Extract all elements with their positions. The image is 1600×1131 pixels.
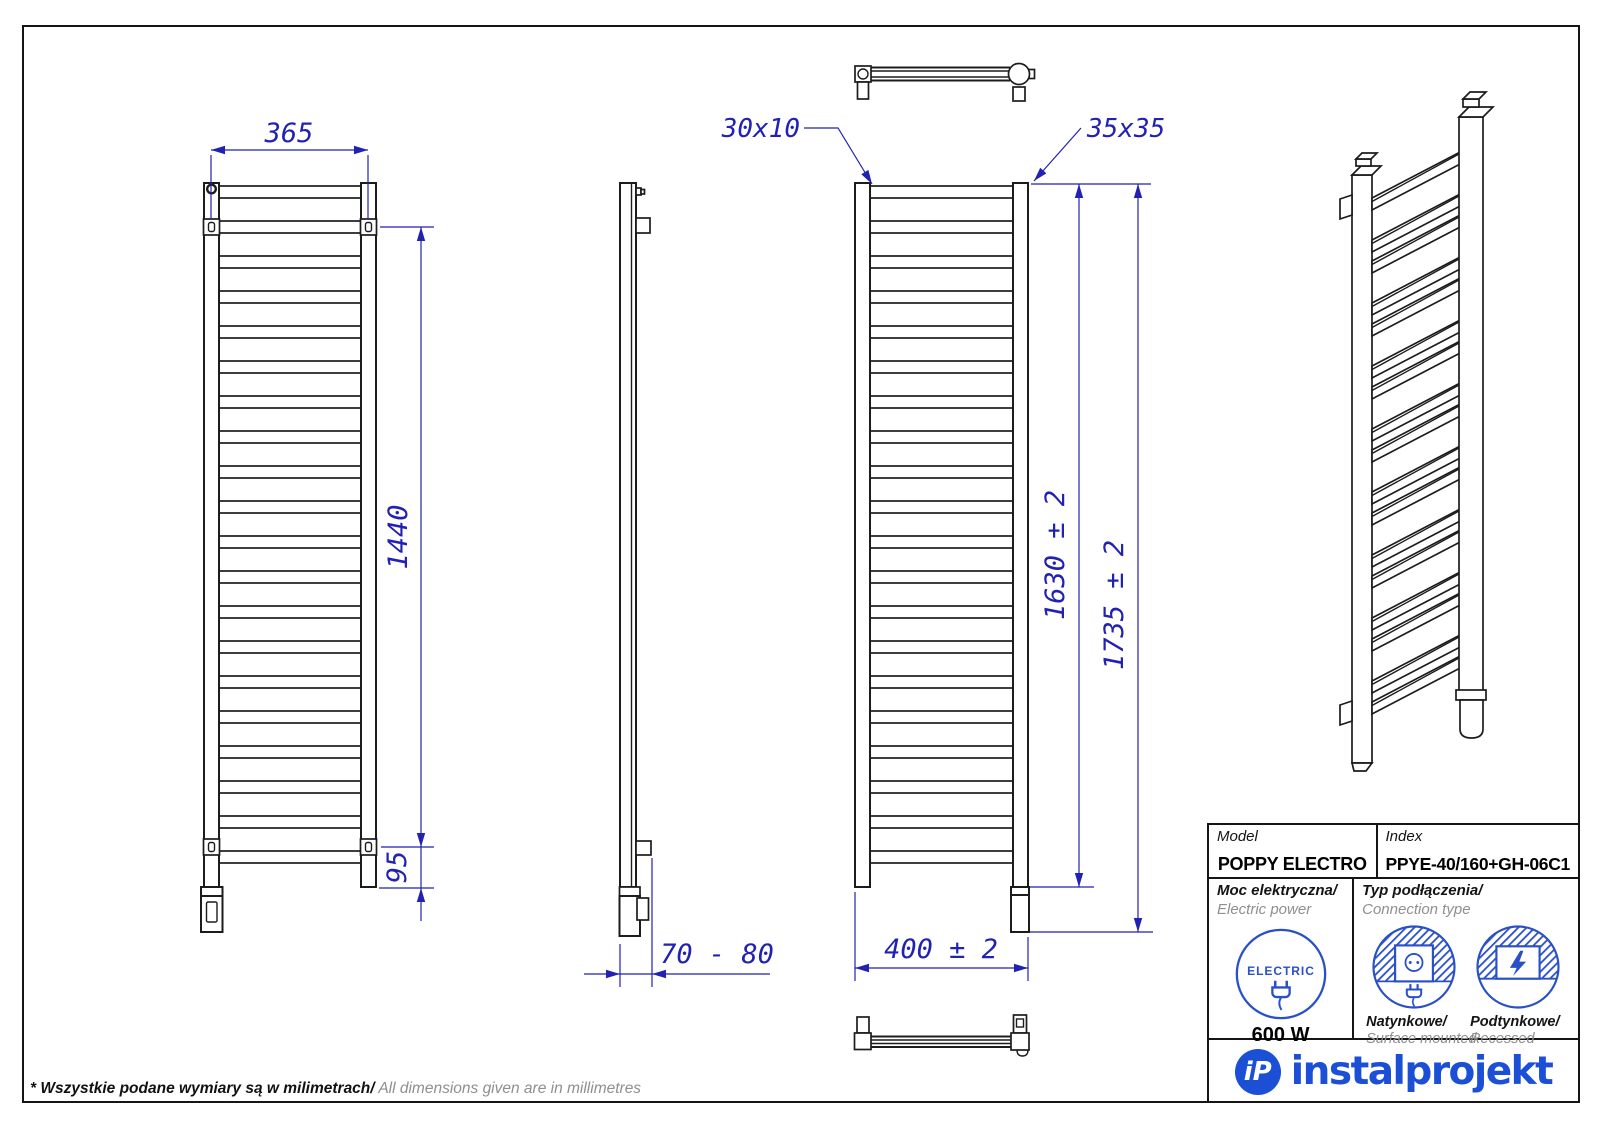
side-bracket-bottom	[636, 841, 651, 855]
heating-element-front	[201, 887, 223, 932]
front-view-rungs	[219, 186, 361, 863]
middle-rung	[870, 501, 1013, 513]
front-rung	[219, 641, 361, 653]
front-rung	[219, 431, 361, 443]
dim-label-400: 400 ± 2	[884, 934, 998, 965]
middle-rung	[870, 466, 1013, 478]
index-cell: Index PPYE-40/160+GH-06C1	[1378, 825, 1578, 877]
middle-rung	[870, 536, 1013, 548]
connection-cell: Typ podłączenia/Connection type	[1354, 879, 1578, 1038]
middle-left-tube	[855, 183, 870, 887]
front-left-tube	[204, 183, 219, 887]
power-label: Moc elektryczna/ Electric power	[1217, 882, 1344, 920]
index-label: Index	[1386, 828, 1570, 847]
front-rung	[219, 816, 361, 828]
dim-label-1440: 1440	[383, 504, 414, 569]
title-block-detail-row: Moc elektryczna/ Electric power ELECTRIC…	[1209, 879, 1578, 1040]
dim-1630-1735: 1630 ± 2 1735 ± 2	[1030, 184, 1153, 932]
middle-rung	[870, 256, 1013, 268]
middle-rung	[870, 606, 1013, 618]
isometric-view	[1340, 92, 1493, 771]
middle-rung	[870, 291, 1013, 303]
dim-label-1735: 1735 ± 2	[1099, 540, 1130, 670]
dim-label-30x10: 30x10	[721, 114, 800, 144]
logo-row: iP instalprojekt	[1209, 1040, 1578, 1103]
middle-rung	[870, 781, 1013, 793]
model-cell: Model POPPY ELECTRO	[1209, 825, 1378, 877]
electric-icon: ELECTRIC	[1233, 926, 1329, 1022]
front-rung	[219, 571, 361, 583]
surface-mounted-icon	[1369, 922, 1459, 1012]
middle-rung	[870, 431, 1013, 443]
middle-rung	[870, 851, 1013, 863]
front-rung	[219, 326, 361, 338]
side-view	[620, 183, 652, 936]
front-view	[201, 183, 377, 932]
front-rung	[219, 361, 361, 373]
brand-logo-text: instalprojekt	[1291, 1049, 1553, 1094]
dim-400: 400 ± 2	[855, 892, 1028, 981]
front-rung	[219, 606, 361, 618]
middle-rung	[870, 711, 1013, 723]
middle-rung	[870, 221, 1013, 233]
front-rung	[219, 466, 361, 478]
middle-rung	[870, 816, 1013, 828]
front-rung	[219, 536, 361, 548]
socket-box	[1395, 945, 1433, 981]
front-rung	[219, 221, 361, 233]
front-rung	[219, 746, 361, 758]
front-rung	[219, 711, 361, 723]
dim-1440-95: 1440 95	[379, 227, 434, 921]
top-section-view	[855, 64, 1035, 102]
dim-label-1630: 1630 ± 2	[1040, 490, 1071, 620]
middle-view-rungs	[870, 186, 1013, 863]
model-value: POPPY ELECTRO	[1217, 854, 1368, 875]
middle-rung	[870, 326, 1013, 338]
dim-365: 365	[211, 118, 368, 219]
middle-rung	[870, 186, 1013, 198]
front-rung	[219, 186, 361, 198]
iso-heater-collar	[1456, 690, 1486, 700]
footnote: * Wszystkie podane wymiary są w milimetr…	[30, 1080, 641, 1098]
front-rung	[219, 781, 361, 793]
middle-rung	[870, 361, 1013, 373]
iso-left-tube	[1352, 175, 1372, 763]
middle-rung	[870, 396, 1013, 408]
title-block: Model POPPY ELECTRO Index PPYE-40/160+GH…	[1207, 823, 1580, 1103]
connection-label: Typ podłączenia/Connection type	[1362, 882, 1570, 920]
plug-glyph	[1272, 980, 1289, 1009]
middle-rung	[870, 641, 1013, 653]
leader-35x35: 35x35	[1034, 114, 1165, 181]
dim-label-depth: 70 - 80	[660, 939, 774, 970]
front-rung	[219, 501, 361, 513]
leader-30x10: 30x10	[721, 114, 872, 184]
iso-bracket-top	[1340, 195, 1352, 219]
side-bracket-top	[636, 218, 650, 233]
front-rung	[219, 396, 361, 408]
iso-heater-cylinder	[1460, 700, 1483, 738]
middle-view	[855, 183, 1029, 932]
power-cell: Moc elektryczna/ Electric power ELECTRIC…	[1209, 879, 1354, 1038]
model-label: Model	[1217, 828, 1368, 847]
dim-depth: 70 - 80	[584, 858, 774, 987]
middle-right-tube	[1013, 183, 1028, 887]
front-rung	[219, 256, 361, 268]
heating-element-side	[620, 887, 649, 936]
front-right-tube	[361, 183, 376, 887]
heating-element-middle	[1011, 887, 1029, 932]
dim-label-365: 365	[264, 118, 314, 149]
middle-rung	[870, 571, 1013, 583]
title-block-header-row: Model POPPY ELECTRO Index PPYE-40/160+GH…	[1209, 825, 1578, 879]
iso-bracket-bottom	[1340, 701, 1352, 725]
front-rung	[219, 291, 361, 303]
middle-rung	[870, 746, 1013, 758]
brand-logo-icon: iP	[1235, 1049, 1281, 1095]
electric-badge-text: ELECTRIC	[1247, 963, 1315, 977]
middle-rung	[870, 676, 1013, 688]
dim-label-35x35: 35x35	[1086, 114, 1165, 144]
iso-right-tube	[1459, 117, 1483, 693]
drawing-sheet: 365 1440 95 70 - 80 400	[0, 0, 1600, 1131]
recessed-icon	[1473, 922, 1563, 1012]
front-rung	[219, 851, 361, 863]
bottom-section-view	[855, 1015, 1030, 1056]
index-value: PPYE-40/160+GH-06C1	[1386, 854, 1570, 875]
front-rung	[219, 676, 361, 688]
dim-label-95: 95	[382, 851, 413, 884]
